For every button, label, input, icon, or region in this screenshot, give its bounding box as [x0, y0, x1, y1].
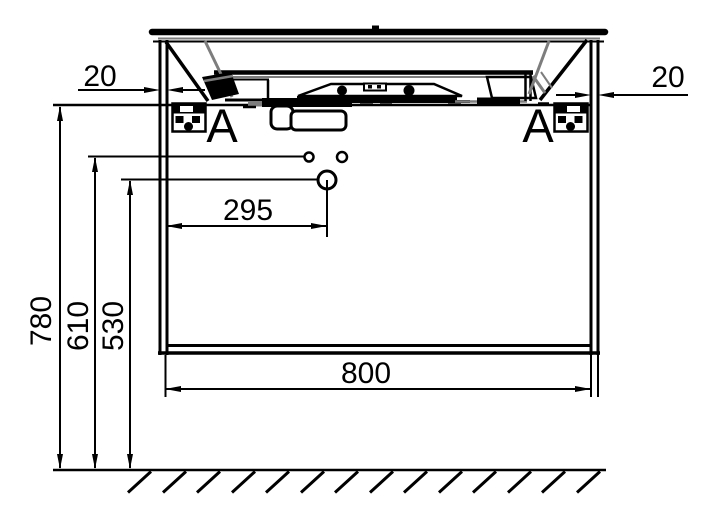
- arrowhead-left: [598, 92, 614, 98]
- technical-drawing-canvas: A A 20 20: [0, 0, 720, 527]
- dim-label-panel-right: 20: [651, 61, 684, 94]
- arrowhead-down: [57, 454, 63, 469]
- faucet-center-tick: [372, 26, 379, 30]
- dim-panel-left-20: 20: [78, 60, 205, 93]
- arrowhead-down: [127, 454, 133, 469]
- arrowhead-right: [575, 92, 591, 98]
- drain-screw-left: [337, 86, 347, 96]
- dim-width-800: 800: [165, 357, 591, 392]
- faucet-hole-small-right: [337, 152, 347, 162]
- drain-trap-box: [291, 111, 346, 130]
- section-label-right: A: [522, 99, 554, 152]
- dim-label-width: 800: [341, 357, 391, 390]
- bowl-right-quad: [487, 77, 536, 98]
- basin-right-bracket-gray-2: [541, 72, 552, 88]
- floor-hatch: [128, 472, 600, 493]
- drain-hub-fitting-pin-right: [377, 85, 381, 89]
- dim-panel-right-20: 20: [556, 61, 688, 98]
- floor-ground: [53, 470, 606, 493]
- section-label-left: A: [206, 99, 238, 152]
- marker-box-pad-right: [575, 116, 583, 123]
- arrowhead-right: [311, 223, 327, 229]
- dim-offset-295: 295: [166, 180, 327, 237]
- arrowhead-up: [92, 157, 98, 172]
- mounting-holes: [305, 152, 348, 189]
- bowl-band-gray: [248, 101, 262, 106]
- dim-label-drain-offset: 295: [223, 194, 273, 227]
- dim-label-panel-left: 20: [83, 60, 116, 93]
- section-marker-box-right: [555, 104, 588, 132]
- arrowhead-down: [92, 454, 98, 469]
- arrowhead-up: [57, 106, 63, 121]
- dim-height-780: 780: [25, 106, 63, 469]
- arrowhead-up: [127, 180, 133, 195]
- arrowhead-left: [167, 87, 183, 93]
- dim-label-height-total: 780: [25, 296, 58, 346]
- marker-box-stud: [566, 122, 575, 131]
- arrowhead-right: [575, 386, 591, 392]
- dim-label-height-faucet-holes: 610: [62, 301, 95, 351]
- marker-box-pad-left: [558, 116, 566, 123]
- marker-box-pad-left: [176, 116, 184, 123]
- drain-screw-right: [404, 85, 415, 96]
- marker-box-pad-right: [192, 116, 200, 123]
- section-marker-box-left: [173, 104, 206, 132]
- faucet-hole-small-left: [305, 153, 314, 162]
- dim-height-530: 530: [97, 180, 318, 470]
- marker-box-stud: [184, 122, 193, 131]
- dim-label-height-drain-hole: 530: [97, 301, 130, 351]
- drain-hub-fitting: [364, 84, 386, 91]
- section-markers: A A: [173, 99, 588, 152]
- marker-box-slot: [180, 106, 193, 112]
- arrowhead-left: [165, 386, 181, 392]
- arrowhead-right: [144, 87, 160, 93]
- vanity-section-drawing: A A 20 20: [0, 0, 720, 527]
- drain-hub-fitting-pin-left: [368, 85, 372, 89]
- marker-box-slot: [567, 106, 580, 112]
- basin-left-slope: [166, 42, 208, 101]
